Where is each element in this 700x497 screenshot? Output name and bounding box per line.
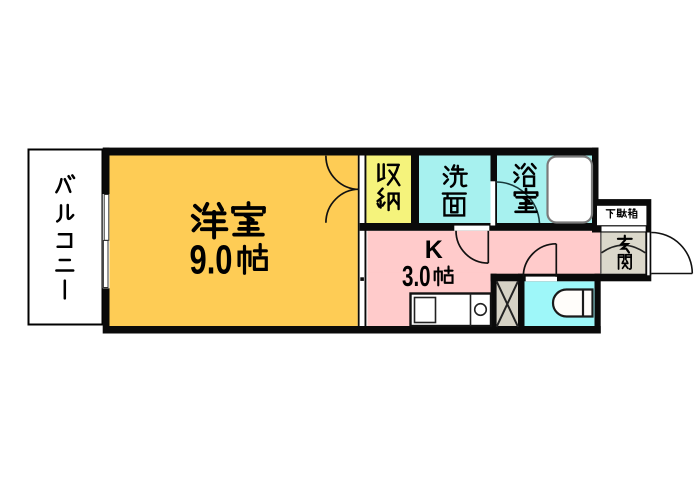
svg-text:K: K xyxy=(425,236,443,264)
svg-text:3.0: 3.0 xyxy=(402,261,431,293)
svg-text:9.0: 9.0 xyxy=(190,236,233,282)
